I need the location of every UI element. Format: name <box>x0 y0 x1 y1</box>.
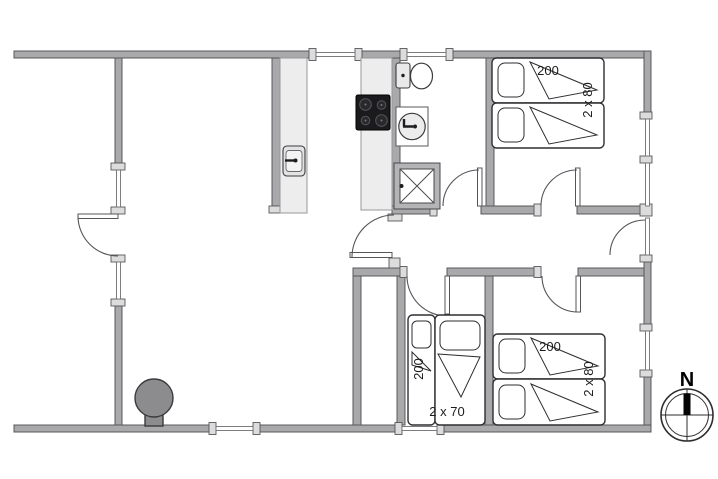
wall-closet-west <box>353 276 361 425</box>
wall-closet-east <box>397 276 405 425</box>
bed-width-label: 2 x 70 <box>429 404 464 419</box>
kitchen <box>280 58 392 213</box>
floorplan-page: 200 2 x 80 200 2 x 70 200 2 x 80 N <box>0 0 718 479</box>
door-terrace-east <box>610 218 650 255</box>
compass-north-label: N <box>680 369 694 391</box>
wall-right-1 <box>644 51 651 112</box>
bed-length-label: 200 <box>537 63 559 78</box>
wall-bottom-2 <box>260 425 395 432</box>
wall-top-2 <box>362 51 400 58</box>
wall-top-1 <box>14 51 309 58</box>
pillow <box>498 108 524 142</box>
shower <box>394 163 440 209</box>
window-right-bedroom-bottom <box>646 331 650 370</box>
pillow <box>499 385 525 419</box>
door-bedroom-bottom-right <box>542 276 581 312</box>
cooktop <box>356 95 390 130</box>
pillow <box>498 63 524 97</box>
bed-length-label: 200 <box>411 358 426 380</box>
door-bathroom <box>443 168 482 206</box>
wall-left-partition-upper <box>115 58 122 163</box>
window-top-kitchen <box>316 53 355 57</box>
floorplan-drawing: 200 2 x 80 200 2 x 70 200 2 x 80 N <box>0 0 718 479</box>
wall-bottom-3 <box>444 425 651 432</box>
bed-length-label: 200 <box>539 339 561 354</box>
bed-width-label: 2 x 80 <box>580 82 595 117</box>
washbasin <box>396 107 428 146</box>
wood-stove <box>135 379 173 426</box>
kitchen-counter-east <box>361 58 392 210</box>
window-right-bedroom-top-2 <box>646 163 650 206</box>
pillow <box>412 321 431 348</box>
wall-bottom-1 <box>14 425 209 432</box>
wall-bottom-bedrooms-divider <box>485 276 493 425</box>
window-bottom-living <box>216 427 253 431</box>
wall-right-2 <box>644 262 651 324</box>
compass-needle-icon <box>684 394 691 416</box>
compass-rose: N <box>661 369 713 441</box>
bed-width-label: 2 x 80 <box>581 361 596 396</box>
window-partition-upper <box>117 170 121 207</box>
door-bedroom-top-right <box>541 168 580 206</box>
wall-hall-south-3 <box>578 268 644 276</box>
bedroom-top-right: 200 2 x 80 <box>492 58 604 148</box>
wall-kitchen-counter <box>272 58 280 206</box>
bedroom-bottom-center: 200 2 x 70 <box>408 315 485 425</box>
pillow <box>440 321 480 350</box>
wall-right-3 <box>644 377 651 432</box>
wall-hall-south-2 <box>447 268 541 276</box>
wall-left-partition-lower <box>115 306 122 425</box>
wall-hall-north-3 <box>577 206 644 214</box>
bathroom <box>394 63 440 209</box>
toilet <box>396 63 433 89</box>
pillow <box>499 339 525 373</box>
wall-hall-south-1 <box>353 268 407 276</box>
door-hall <box>350 215 394 258</box>
door-bedroom-bottom-center <box>407 276 450 316</box>
window-top-bathroom <box>407 53 446 57</box>
window-partition-lower <box>117 262 121 299</box>
kitchen-counter-west <box>280 58 307 213</box>
bedroom-bottom-right: 200 2 x 80 <box>493 334 605 425</box>
wall-top-3 <box>453 51 651 58</box>
door-left-room <box>78 214 118 256</box>
kitchen-sink <box>283 146 305 176</box>
window-bottom-bedroom <box>402 427 437 431</box>
wall-hall-north-2 <box>481 206 541 214</box>
window-right-bedroom-top-1 <box>646 119 650 156</box>
